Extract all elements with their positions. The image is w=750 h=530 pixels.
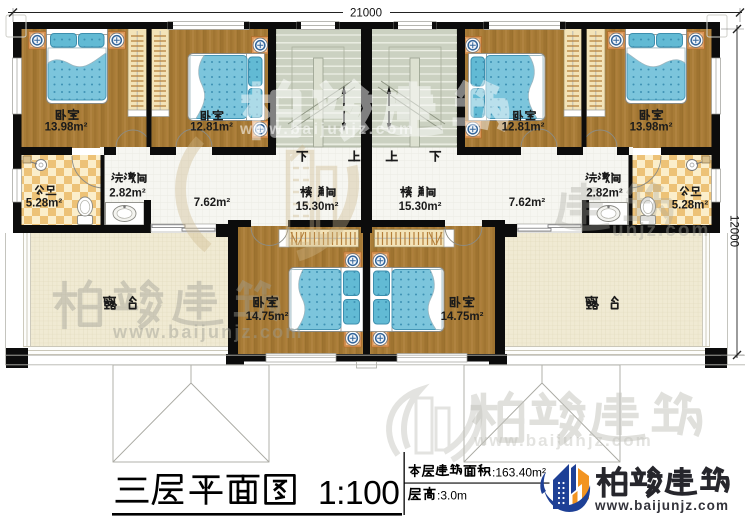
svg-text::163.40m²: :163.40m² bbox=[492, 466, 546, 480]
svg-text:2.82m²: 2.82m² bbox=[586, 188, 623, 200]
svg-text:5.28m²: 5.28m² bbox=[26, 198, 63, 210]
svg-text:15.30m²: 15.30m² bbox=[296, 201, 339, 213]
svg-text:13.98m²: 13.98m² bbox=[630, 122, 673, 134]
svg-text:13.98m²: 13.98m² bbox=[45, 122, 88, 134]
svg-text:2.82m²: 2.82m² bbox=[109, 188, 146, 200]
svg-text:www.baijunjz.com: www.baijunjz.com bbox=[594, 498, 729, 513]
svg-text:unjz.com: unjz.com bbox=[612, 220, 710, 241]
svg-text:www.baijunjz.com: www.baijunjz.com bbox=[239, 121, 415, 138]
svg-text:www.baijunjz.com: www.baijunjz.com bbox=[112, 322, 304, 342]
svg-text::3.0m: :3.0m bbox=[437, 489, 467, 503]
svg-text:14.75m²: 14.75m² bbox=[246, 311, 289, 323]
svg-text:www.baijunjz.com: www.baijunjz.com bbox=[473, 431, 653, 450]
svg-text:14.75m²: 14.75m² bbox=[441, 311, 484, 323]
svg-text:12000: 12000 bbox=[728, 215, 740, 247]
svg-text:5.28m²: 5.28m² bbox=[672, 200, 709, 212]
svg-text:7.62m²: 7.62m² bbox=[509, 197, 546, 209]
svg-text:12.81m²: 12.81m² bbox=[502, 122, 545, 134]
svg-text:7.62m²: 7.62m² bbox=[194, 197, 231, 209]
svg-text:12.81m²: 12.81m² bbox=[190, 122, 233, 134]
svg-text:15.30m²: 15.30m² bbox=[399, 201, 442, 213]
svg-text:21000: 21000 bbox=[350, 8, 382, 20]
svg-text:1:100: 1:100 bbox=[318, 475, 399, 512]
